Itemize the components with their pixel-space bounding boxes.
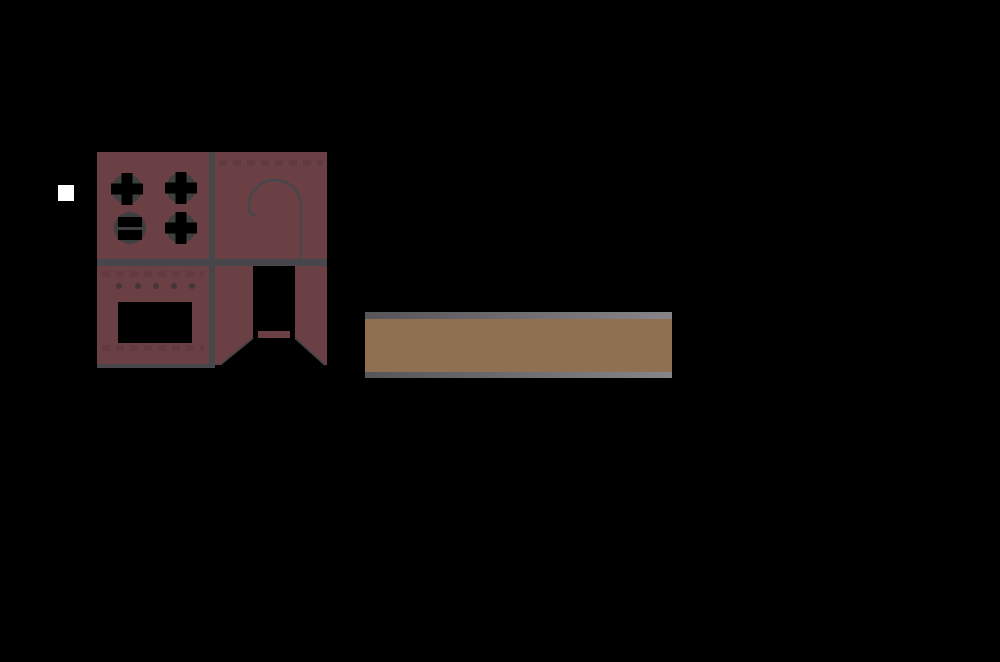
cabinet-shelf-bar — [258, 331, 290, 338]
upper-cabinet-panel — [215, 152, 327, 259]
banner-bottom-edge — [365, 372, 672, 378]
cabinet-right-leg — [295, 266, 327, 365]
kitchen-logo-illustration[interactable] — [97, 152, 327, 368]
white-square — [58, 185, 74, 201]
oven-window — [118, 302, 192, 343]
brand-banner[interactable] — [365, 312, 672, 378]
white-square-marker — [58, 185, 74, 201]
banner-body — [365, 319, 672, 372]
oven-knob — [171, 283, 177, 289]
oven-knob — [189, 283, 195, 289]
oven-knob — [116, 283, 122, 289]
oven-bottom-edge-line — [97, 364, 209, 368]
cabinet-left-leg — [215, 266, 253, 365]
oven-knob — [153, 283, 159, 289]
cooktop-panel — [97, 152, 209, 259]
banner-top-edge — [365, 312, 672, 319]
oven-knob — [135, 283, 141, 289]
horizontal-divider-line — [97, 259, 327, 266]
